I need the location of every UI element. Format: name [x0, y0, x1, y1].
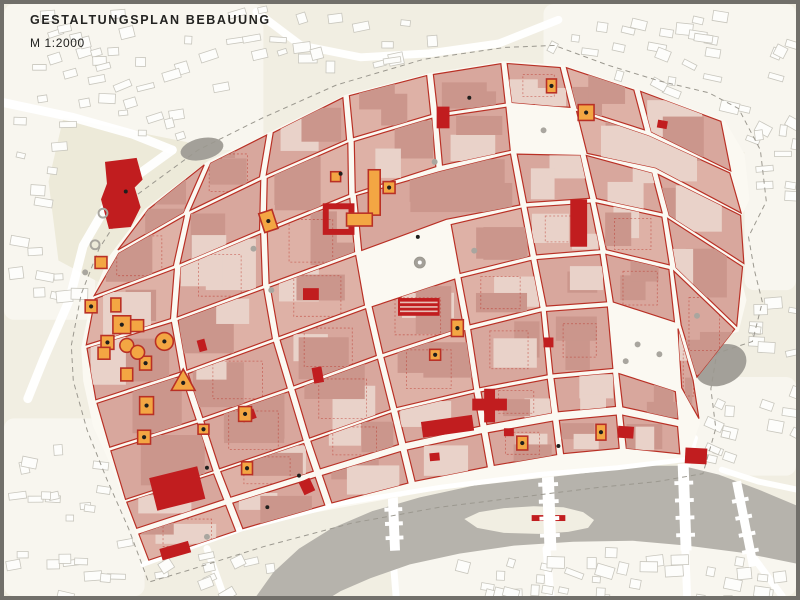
tower-ne-landmark: [570, 199, 587, 246]
entry-dot: [297, 474, 301, 478]
map-frame: GESTALTUNGSPLAN BEBAUUNG M 1:2000: [0, 0, 800, 600]
tree: [251, 246, 257, 252]
tall-north-landmark: [437, 107, 450, 129]
city-map: [4, 4, 796, 596]
title-block: GESTALTUNGSPLAN BEBAUUNG M 1:2000: [30, 13, 271, 50]
monument-building: [121, 368, 133, 381]
monument-building: [98, 347, 110, 359]
entry-dot: [416, 235, 420, 239]
bridge: [548, 466, 551, 551]
bridgehead-landmark: [685, 447, 708, 464]
entry-dot: [205, 466, 209, 470]
tree: [623, 358, 629, 364]
tree: [541, 127, 547, 133]
map-title: GESTALTUNGSPLAN BEBAUUNG: [30, 13, 271, 27]
tree: [656, 351, 662, 357]
entry-dot: [467, 96, 471, 100]
monument-building: [347, 213, 373, 226]
tree: [694, 313, 700, 319]
entry-dot: [265, 505, 269, 509]
entry-dot: [556, 444, 560, 448]
entry-dot: [124, 189, 128, 193]
tree: [471, 248, 477, 254]
monument-building: [111, 298, 121, 312]
map-scale-label: M 1:2000: [30, 36, 271, 50]
tree: [268, 287, 274, 293]
tree: [635, 341, 641, 347]
tree: [204, 534, 210, 540]
entry-dot: [339, 172, 343, 176]
monument-building: [131, 320, 144, 332]
tree: [82, 269, 88, 275]
monument-rotunda: [131, 345, 145, 359]
monument-building: [95, 257, 107, 269]
monument-building: [368, 170, 380, 215]
tree: [432, 159, 438, 165]
